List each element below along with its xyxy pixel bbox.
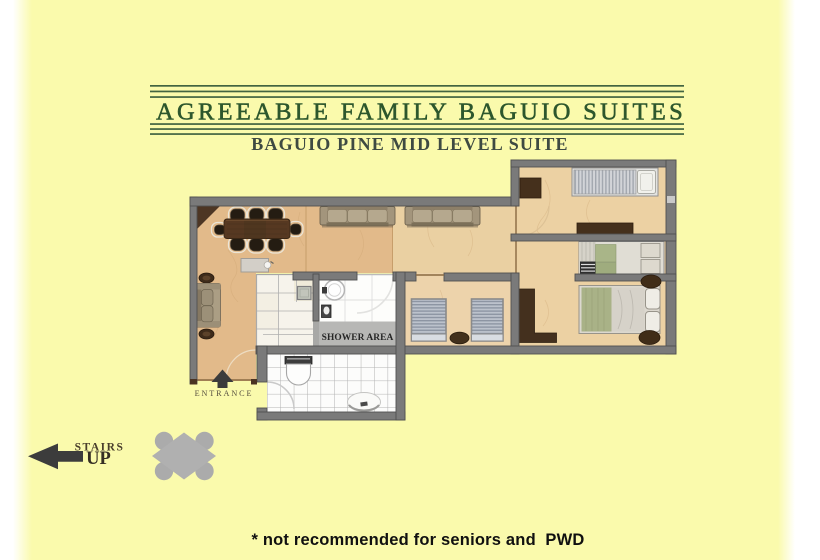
svg-text:SHOWER AREA: SHOWER AREA [322,333,394,343]
svg-text:* not recommended for seniors: * not recommended for seniors and PWD [251,531,584,549]
svg-text:UP: UP [86,449,111,469]
svg-text:BAGUIO PINE MID LEVEL SUITE: BAGUIO PINE MID LEVEL SUITE [251,134,568,154]
svg-text:AGREEABLE FAMILY BAGUIO SUITES: AGREEABLE FAMILY BAGUIO SUITES [156,99,686,126]
svg-text:ENTRANCE: ENTRANCE [195,389,254,398]
